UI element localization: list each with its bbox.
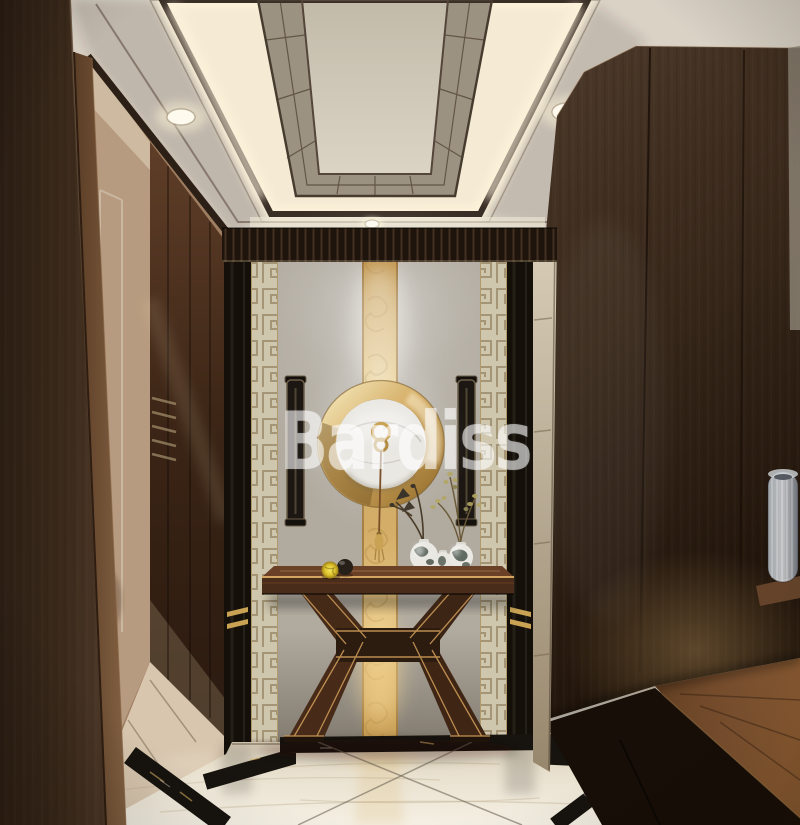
vignette-overlay [0,0,800,825]
interior-render: Bardiss [0,0,800,825]
scene-canvas [0,0,800,825]
